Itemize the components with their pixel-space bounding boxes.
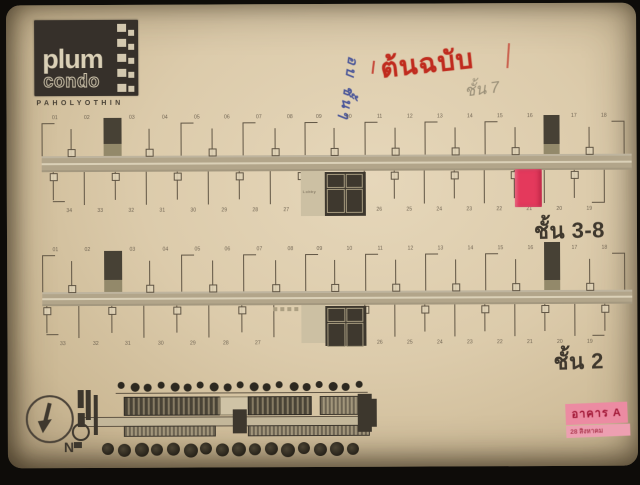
unit-wall — [274, 128, 275, 155]
tree-icon — [200, 442, 212, 454]
unit-number: 27 — [283, 208, 289, 213]
plan-layer: plum condo PAHOLYOTHIN ต้นฉบับ ชั้น 7 อบ… — [6, 3, 638, 469]
unit-top-edge — [42, 255, 55, 256]
tree-icon — [216, 443, 229, 456]
tree-icon — [183, 444, 197, 458]
unit-top-edge — [243, 254, 256, 255]
site-structure — [86, 390, 91, 420]
unit-wall — [71, 129, 72, 156]
unit-wall — [42, 255, 43, 292]
unit-top-edge — [42, 123, 55, 124]
unit-wall — [273, 305, 274, 337]
unit-number: 25 — [406, 207, 412, 212]
unit-wall — [394, 171, 395, 199]
unit-number: 30 — [190, 208, 196, 213]
unit-door — [50, 173, 58, 181]
stair-block-lower — [104, 280, 122, 292]
unit-number: 12 — [408, 246, 414, 251]
core-cell — [327, 308, 345, 322]
unit-wall — [181, 255, 182, 292]
site-edge-line — [116, 392, 368, 394]
unit-wall — [46, 306, 47, 333]
unit-wall — [115, 172, 116, 200]
unit-door — [68, 285, 76, 293]
tree-icon — [355, 381, 362, 388]
north-compass: N — [24, 393, 80, 455]
unit-number: 05 — [194, 115, 200, 120]
unit-number: 29 — [221, 208, 227, 213]
unit-number: 17 — [571, 113, 577, 118]
unit-number: 09 — [316, 114, 322, 119]
unit-number: 18 — [601, 113, 607, 118]
core-cell — [327, 189, 345, 213]
unit-number: 06 — [225, 247, 231, 252]
unit-top-edge — [181, 123, 194, 124]
unit-number: 23 — [467, 340, 473, 345]
tree-icon — [144, 384, 152, 392]
unit-wall — [544, 170, 545, 203]
unit-number: 08 — [287, 115, 293, 120]
unit-number: 24 — [436, 207, 442, 212]
core-lobby-area — [301, 171, 325, 216]
unit-number: 07 — [257, 247, 263, 252]
unit-door — [541, 305, 549, 313]
unit-wall — [544, 304, 545, 331]
site-structure — [94, 395, 98, 435]
stair-block-lower — [544, 144, 560, 154]
plum-condo-logo: plum condo PAHOLYOTHIN — [34, 20, 138, 112]
unit-door — [146, 285, 154, 293]
tree-icon — [232, 442, 246, 456]
stair-block-lower — [104, 144, 122, 156]
unit-top-edge — [365, 254, 378, 255]
logo-dash-stripe-icon — [117, 24, 126, 92]
tree-icon — [250, 382, 259, 391]
corner-edge — [612, 121, 625, 122]
unit-number: 31 — [125, 341, 131, 346]
highlighted-unit-21 — [515, 169, 542, 207]
building-wing — [248, 425, 370, 437]
tree-icon — [249, 443, 261, 455]
corridor-centerline — [42, 161, 632, 166]
unit-wall — [78, 306, 79, 338]
stair-block — [104, 251, 122, 280]
unit-number: 26 — [377, 340, 383, 345]
core-cell — [346, 323, 363, 347]
core-lift-block — [325, 172, 366, 216]
corner-edge — [612, 253, 625, 254]
unit-number: 21 — [526, 207, 532, 212]
corridor-fixtures — [273, 307, 299, 311]
tree-icon — [167, 443, 180, 456]
unit-door — [209, 284, 217, 292]
corner-edge — [592, 202, 604, 203]
unit-door — [392, 148, 400, 156]
unit-number: 04 — [162, 115, 168, 120]
unit-door — [586, 283, 594, 291]
unit-wall — [212, 128, 213, 155]
unit-wall — [514, 170, 515, 198]
red-pen-tick — [506, 43, 510, 68]
drop-off-island — [233, 409, 247, 433]
unit-wall — [177, 172, 178, 200]
core-cell — [327, 174, 345, 188]
unit-door — [601, 305, 609, 313]
unit-wall — [275, 260, 276, 291]
unit-number: 21 — [527, 340, 533, 345]
core-lobby-area — [301, 305, 325, 343]
unit-number: 32 — [92, 341, 98, 346]
tree-icon — [314, 443, 327, 456]
unit-door — [238, 306, 246, 314]
unit-number: 03 — [130, 247, 136, 252]
unit-wall — [485, 253, 486, 290]
unit-door — [174, 173, 182, 181]
corridor-centerline — [42, 296, 632, 301]
unit-number: 26 — [376, 207, 382, 212]
unit-number: 09 — [317, 246, 323, 251]
unit-top-edge — [425, 121, 438, 122]
corner-edge — [53, 201, 65, 202]
building-wing — [124, 396, 222, 415]
unit-door — [145, 149, 153, 157]
tree-icon — [134, 443, 148, 457]
unit-wall — [455, 259, 456, 290]
unit-number: 20 — [556, 206, 562, 211]
tree-icon — [151, 444, 163, 456]
unit-number: 34 — [66, 209, 72, 214]
unit-top-edge — [425, 253, 438, 254]
stair-block-lower — [544, 280, 560, 290]
logo-type: condo — [43, 72, 100, 90]
tree-icon — [210, 382, 219, 391]
unit-number: 15 — [498, 246, 504, 251]
unit-wall — [146, 172, 147, 205]
building-label: อาคาร A 28 สิงหาคม — [565, 402, 630, 438]
unit-wall — [455, 127, 456, 154]
unit-door — [512, 283, 520, 291]
unit-number: 28 — [252, 208, 258, 213]
unit-wall — [574, 304, 575, 336]
unit-door — [331, 284, 339, 292]
logo-box: plum condo — [34, 20, 138, 96]
core-cell — [346, 174, 363, 188]
unit-door — [298, 172, 306, 180]
unit-door — [481, 305, 489, 313]
photo-background: { "logo": { "name": "plum", "type": "con… — [0, 0, 640, 480]
unit-wall — [484, 304, 485, 331]
corner-edge — [624, 121, 625, 154]
unit-number: 16 — [527, 114, 533, 119]
logo-dash-stripe-icon — [128, 30, 134, 92]
unit-wall — [53, 172, 54, 200]
unit-number: 01 — [53, 248, 59, 253]
unit-number: 08 — [288, 247, 294, 252]
stair-block — [543, 115, 559, 144]
unit-door — [586, 147, 594, 155]
floor-label-3-8: ชั้น 3-8 — [534, 212, 606, 249]
unit-door — [272, 284, 280, 292]
unit-wall — [515, 127, 516, 154]
corner-edge — [624, 253, 625, 290]
unit-number: 15 — [497, 114, 503, 119]
corridor — [42, 290, 632, 307]
tree-icon — [236, 381, 243, 388]
unit-wall — [304, 122, 305, 155]
unit-number: 31 — [159, 208, 165, 213]
unit-wall — [624, 253, 625, 290]
tree-icon — [316, 381, 323, 388]
unit-wall — [241, 305, 242, 332]
unit-number: 14 — [468, 246, 474, 251]
core-cell — [346, 189, 363, 213]
unit-wall — [148, 129, 149, 156]
tree-icon — [289, 382, 298, 391]
unit-door — [68, 149, 76, 157]
unit-number: 16 — [528, 246, 534, 251]
unit-top-edge — [305, 254, 318, 255]
corridor — [42, 154, 632, 173]
unit-number: 25 — [407, 340, 413, 345]
lobby-label: Lobby — [303, 189, 316, 194]
unit-wall — [71, 261, 72, 292]
unit-door — [512, 147, 520, 155]
tree-icon — [118, 382, 125, 389]
unit-top-edge — [485, 121, 498, 122]
logo-brand-text: PAHOLYOTHIN — [36, 100, 123, 107]
unit-top-edge — [485, 253, 498, 254]
unit-number: 06 — [224, 115, 230, 120]
core-cell — [327, 323, 345, 347]
site-plan-drawing — [72, 378, 380, 467]
unit-number: 30 — [157, 341, 163, 346]
unit-top-edge — [304, 122, 317, 123]
unit-wall — [364, 171, 365, 204]
unit-number: 32 — [128, 208, 134, 213]
tree-icon — [329, 382, 338, 391]
tree-icon — [342, 383, 350, 391]
unit-number: 04 — [163, 247, 169, 252]
unit-number: 19 — [586, 206, 592, 211]
corner-edge — [46, 334, 58, 335]
unit-wall — [364, 305, 365, 332]
unit-number: 22 — [497, 340, 503, 345]
unit-number: 11 — [378, 246, 383, 251]
unit-wall — [604, 170, 605, 203]
unit-wall — [485, 121, 486, 154]
unit-top-edge — [364, 122, 377, 123]
unit-wall — [84, 172, 85, 205]
unit-door — [271, 148, 279, 156]
unit-door — [173, 307, 181, 315]
unit-wall — [424, 171, 425, 204]
unit-wall — [181, 123, 182, 156]
unit-number: 12 — [407, 114, 413, 119]
tree-icon — [197, 382, 204, 389]
tree-icon — [263, 383, 271, 391]
tree-icon — [346, 443, 358, 455]
core-cell — [346, 308, 363, 322]
red-pen-tick — [372, 61, 376, 74]
unit-wall — [394, 305, 395, 337]
unit-wall — [176, 306, 177, 333]
unit-wall — [149, 261, 150, 292]
compass-north-label: N — [64, 439, 74, 455]
site-structure — [372, 399, 377, 427]
tree-icon — [157, 382, 164, 389]
unit-door — [452, 147, 460, 155]
unit-wall — [484, 170, 485, 203]
unit-door — [108, 307, 116, 315]
unit-wall — [334, 260, 335, 291]
unit-number: 27 — [255, 341, 261, 346]
unit-door — [392, 284, 400, 292]
unit-wall — [143, 306, 144, 338]
unit-wall — [243, 122, 244, 155]
unit-number: 14 — [467, 114, 473, 119]
unit-wall — [574, 170, 575, 198]
unit-number: 33 — [97, 208, 103, 213]
unit-wall — [425, 122, 426, 155]
unit-number: 29 — [190, 341, 196, 346]
unit-wall — [270, 171, 271, 204]
north-arrow-icon — [34, 399, 64, 437]
unit-number: 05 — [195, 247, 201, 252]
unit-door — [452, 283, 460, 291]
tree-icon — [302, 383, 310, 391]
unit-wall — [365, 254, 366, 291]
unit-door — [112, 173, 120, 181]
unit-wall — [243, 254, 244, 291]
unit-door — [511, 171, 519, 179]
unit-door — [421, 306, 429, 314]
unit-wall — [301, 171, 302, 199]
unit-wall — [454, 170, 455, 198]
unit-wall — [424, 305, 425, 332]
unit-wall — [395, 260, 396, 291]
unit-number: 10 — [347, 246, 353, 251]
building-label-title: อาคาร A — [565, 402, 628, 425]
unit-wall — [515, 259, 516, 290]
unit-number: 02 — [84, 115, 90, 120]
unit-door — [209, 148, 217, 156]
tree-icon — [330, 442, 344, 456]
unit-number: 13 — [437, 114, 443, 119]
tree-icon — [131, 383, 140, 392]
blue-pen-handwriting-note: อบ ชั้นๆ — [330, 55, 364, 149]
unit-top-edge — [181, 255, 194, 256]
unit-number: 33 — [60, 342, 66, 347]
unit-number: 23 — [466, 207, 472, 212]
building-wing — [124, 425, 216, 436]
tree-icon — [102, 443, 114, 455]
tree-icon — [265, 442, 278, 455]
stair-block — [103, 118, 121, 144]
unit-wall — [208, 171, 209, 204]
tree-icon — [118, 444, 131, 457]
unit-wall — [111, 306, 112, 333]
unit-number: 03 — [129, 115, 135, 120]
unit-wall — [305, 254, 306, 291]
unit-door — [571, 171, 579, 179]
unit-number: 13 — [438, 246, 444, 251]
unit-door — [361, 306, 369, 314]
unit-wall — [208, 305, 209, 337]
unit-door — [391, 172, 399, 180]
tree-icon — [223, 383, 231, 391]
unit-number: 01 — [52, 116, 58, 121]
logo-name: plum — [42, 46, 103, 73]
unit-number: 02 — [85, 247, 91, 252]
unit-wall — [239, 171, 240, 199]
original-stamp: ต้นฉบับ — [378, 37, 476, 90]
unit-wall — [589, 259, 590, 290]
unit-wall — [514, 304, 515, 336]
tree-icon — [170, 383, 179, 392]
unit-wall — [42, 123, 43, 156]
unit-number: 11 — [377, 114, 382, 119]
unit-number: 22 — [496, 207, 502, 212]
core-lift-block — [325, 306, 366, 346]
unit-door — [236, 172, 244, 180]
paper-sheet: plum condo PAHOLYOTHIN ต้นฉบับ ชั้น 7 อบ… — [6, 3, 638, 469]
pencil-handwriting-note: ชั้น 7 — [463, 75, 501, 104]
tree-icon — [281, 443, 295, 457]
unit-wall — [624, 121, 625, 154]
unit-wall — [425, 254, 426, 291]
floor-label-2: ชั้น 2 — [553, 343, 604, 379]
building-wing — [248, 396, 312, 415]
building-label-subtitle: 28 สิงหาคม — [566, 424, 630, 439]
unit-wall — [604, 304, 605, 331]
unit-wall — [454, 304, 455, 336]
unit-door — [43, 307, 51, 315]
unit-top-edge — [243, 122, 256, 123]
unit-door — [331, 148, 339, 156]
unit-door — [451, 171, 459, 179]
tree-icon — [297, 442, 309, 454]
unit-wall — [212, 260, 213, 291]
unit-wall — [364, 122, 365, 155]
unit-number: 07 — [256, 115, 262, 120]
unit-number: 28 — [222, 341, 228, 346]
unit-number: 24 — [437, 340, 443, 345]
site-structure — [358, 394, 372, 432]
tree-icon — [276, 381, 283, 388]
tree-icon — [184, 384, 192, 392]
unit-wall — [589, 127, 590, 154]
unit-wall — [395, 128, 396, 155]
corner-edge — [592, 335, 604, 336]
